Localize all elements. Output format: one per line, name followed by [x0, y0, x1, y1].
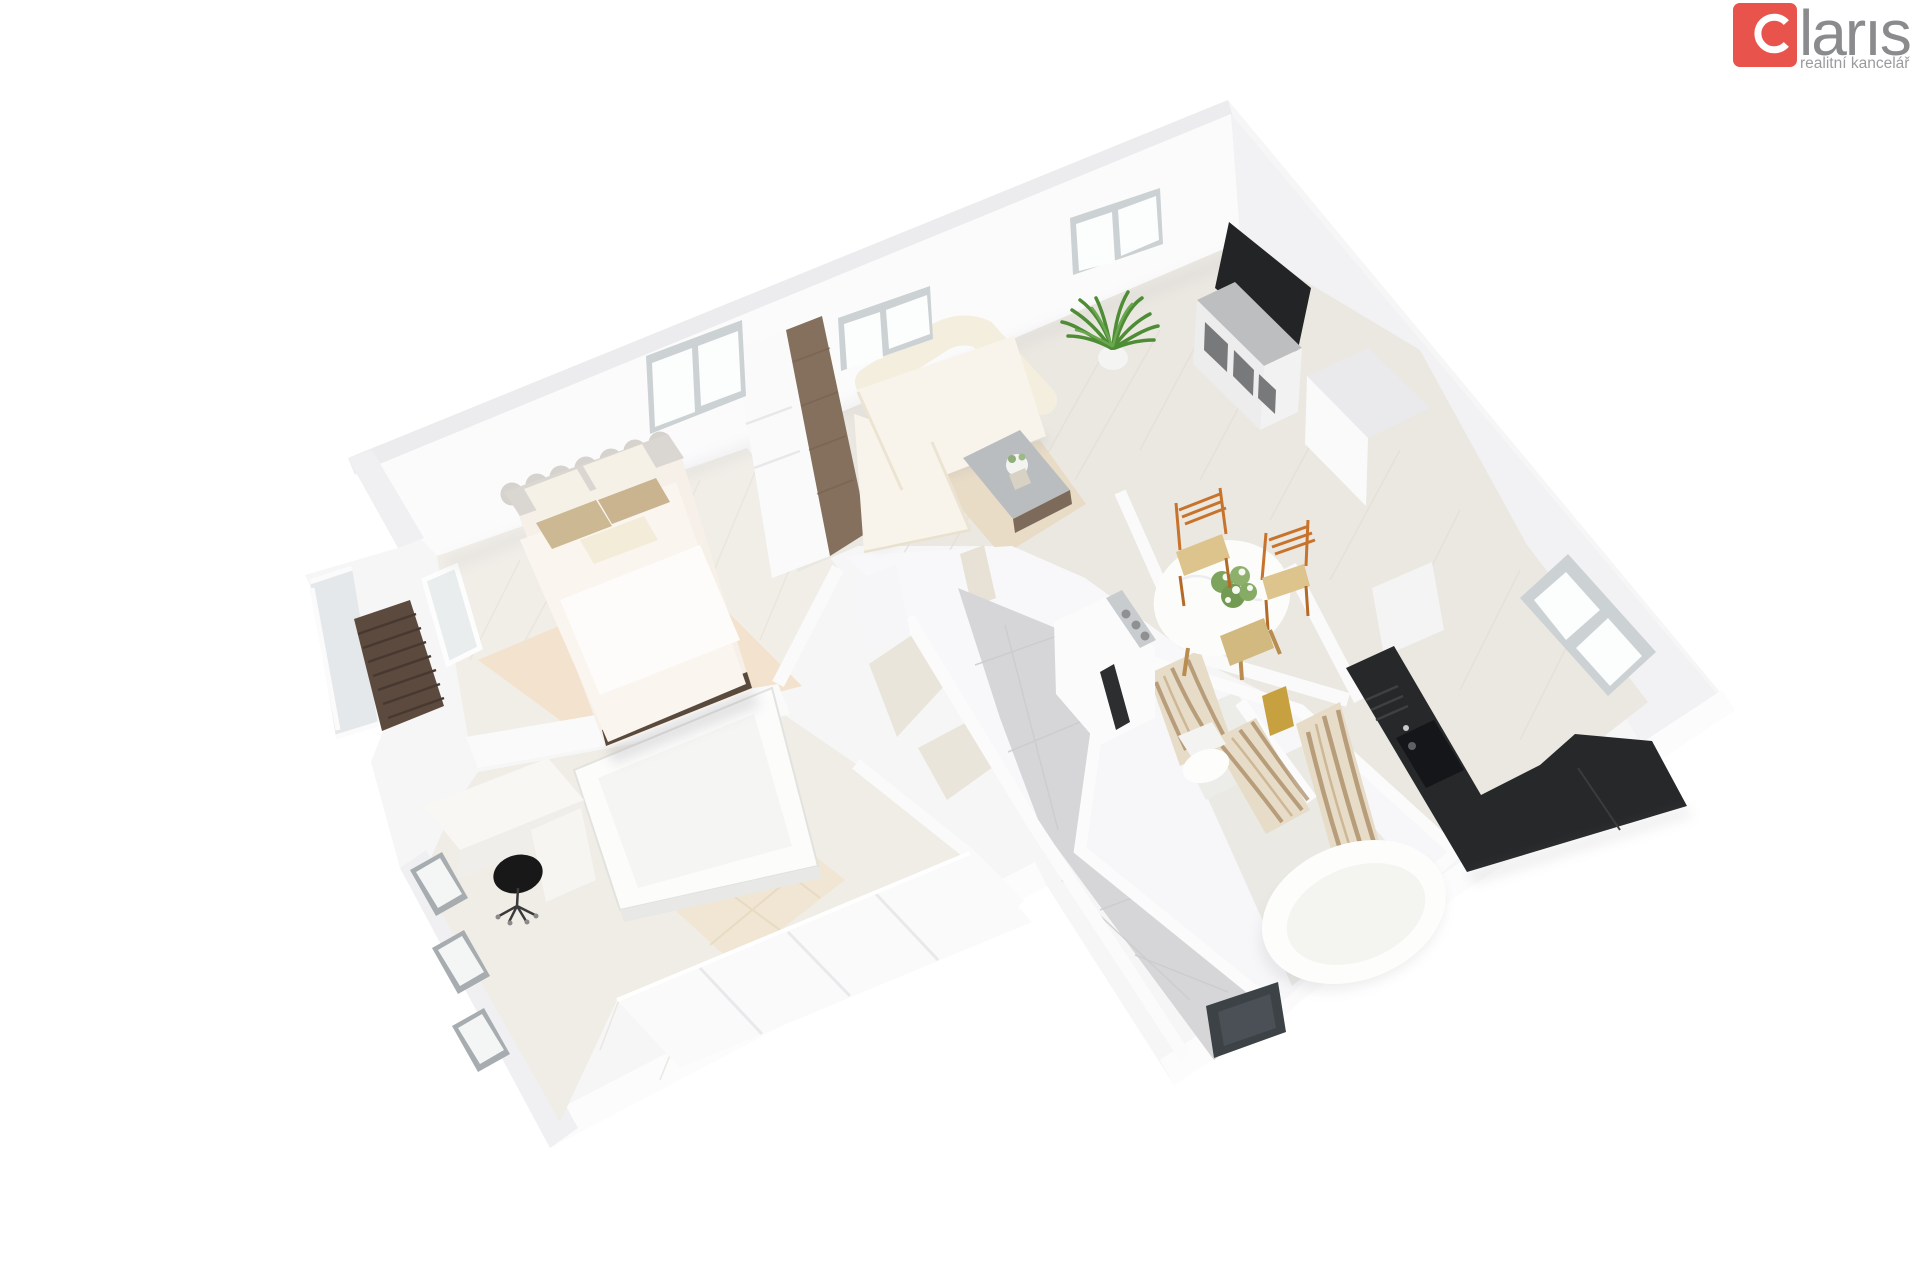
svg-text:realitní kancelář: realitní kancelář — [1800, 55, 1910, 72]
